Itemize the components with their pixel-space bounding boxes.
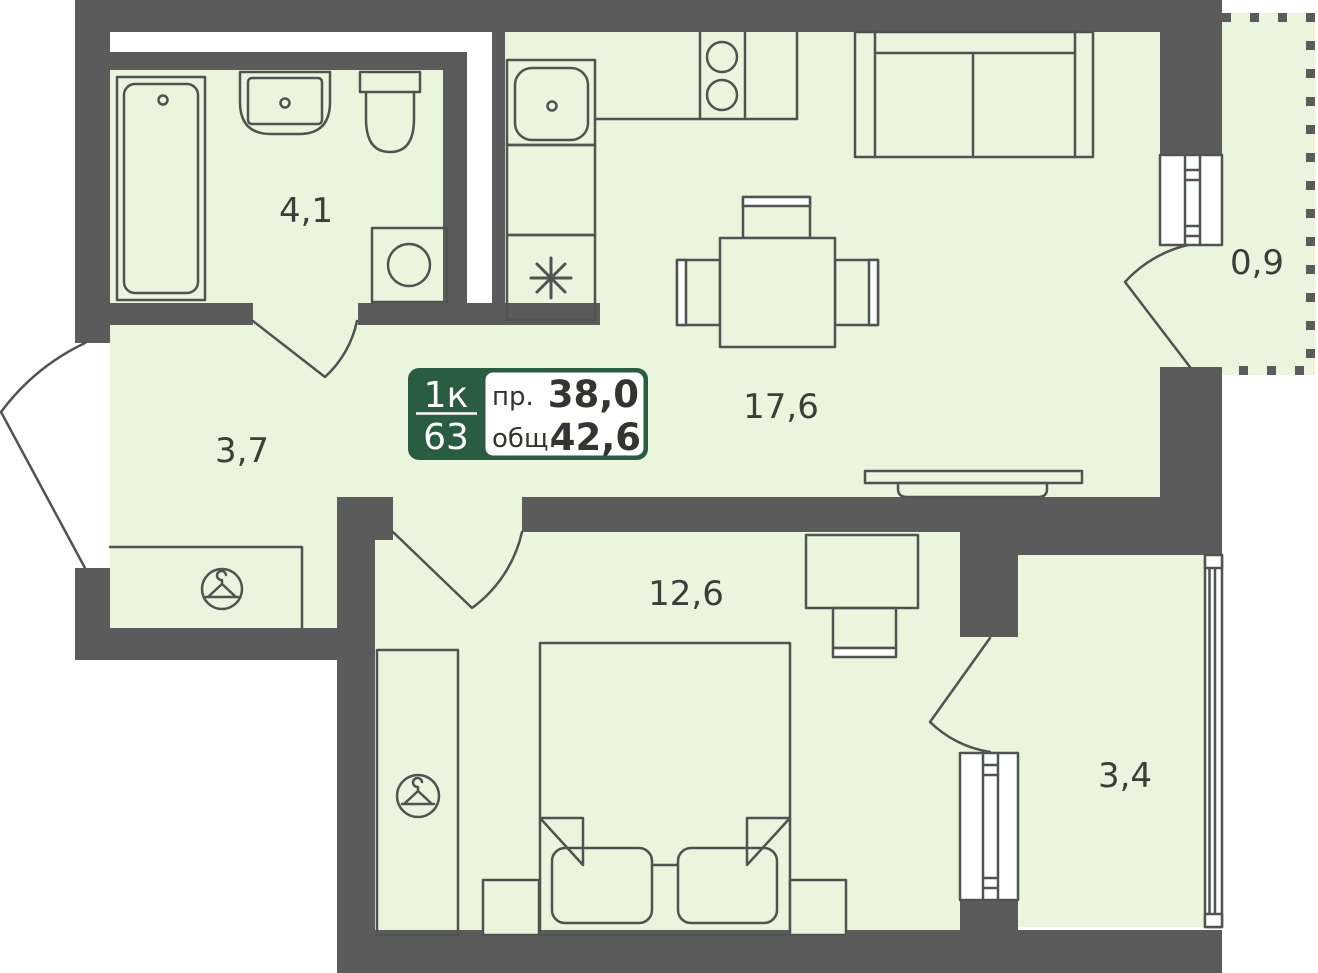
- nightstand-right: [790, 880, 846, 935]
- room-label-hallway: 3,7: [215, 431, 269, 471]
- balcony-window: [1160, 155, 1222, 245]
- floor-balcony-door-gap: [1160, 245, 1222, 367]
- total-area-value: 42,6: [550, 416, 641, 459]
- loggia-glazing: [1205, 555, 1222, 927]
- floor-plan: 4,1 3,7 17,6 0,9 12,6 3,4 1к 63 пр. 38,0…: [0, 0, 1318, 973]
- floor-bedroom-door-gap: [393, 497, 522, 532]
- living-area-label: пр.: [492, 382, 534, 412]
- dining-table: [720, 238, 835, 347]
- room-label-bedroom: 12,6: [648, 574, 724, 614]
- apartment-number: 63: [423, 417, 469, 458]
- room-label-kitchen-living: 17,6: [743, 387, 819, 427]
- pillow-left: [552, 848, 652, 923]
- living-area-value: 38,0: [548, 373, 639, 416]
- floor-loggia-door-gap: [960, 637, 1018, 753]
- pillow-right: [678, 848, 777, 923]
- apartment-type: 1к: [424, 375, 469, 416]
- floor-plan-page: 4,1 3,7 17,6 0,9 12,6 3,4 1к 63 пр. 38,0…: [0, 0, 1318, 973]
- nightstand-left: [483, 880, 539, 935]
- room-label-loggia: 3,4: [1098, 756, 1152, 796]
- apartment-info-box: 1к 63 пр. 38,0 общ. 42,6: [408, 368, 648, 460]
- room-label-bathroom: 4,1: [279, 191, 333, 231]
- fridge-asterisk-icon: [531, 258, 571, 298]
- floor-balcony: [1222, 13, 1315, 375]
- floor-loggia: [1018, 555, 1205, 927]
- total-area-label: общ.: [492, 424, 557, 454]
- loggia-window: [960, 753, 1018, 900]
- desk-chair-base: [833, 648, 896, 657]
- room-label-balcony: 0,9: [1230, 243, 1284, 283]
